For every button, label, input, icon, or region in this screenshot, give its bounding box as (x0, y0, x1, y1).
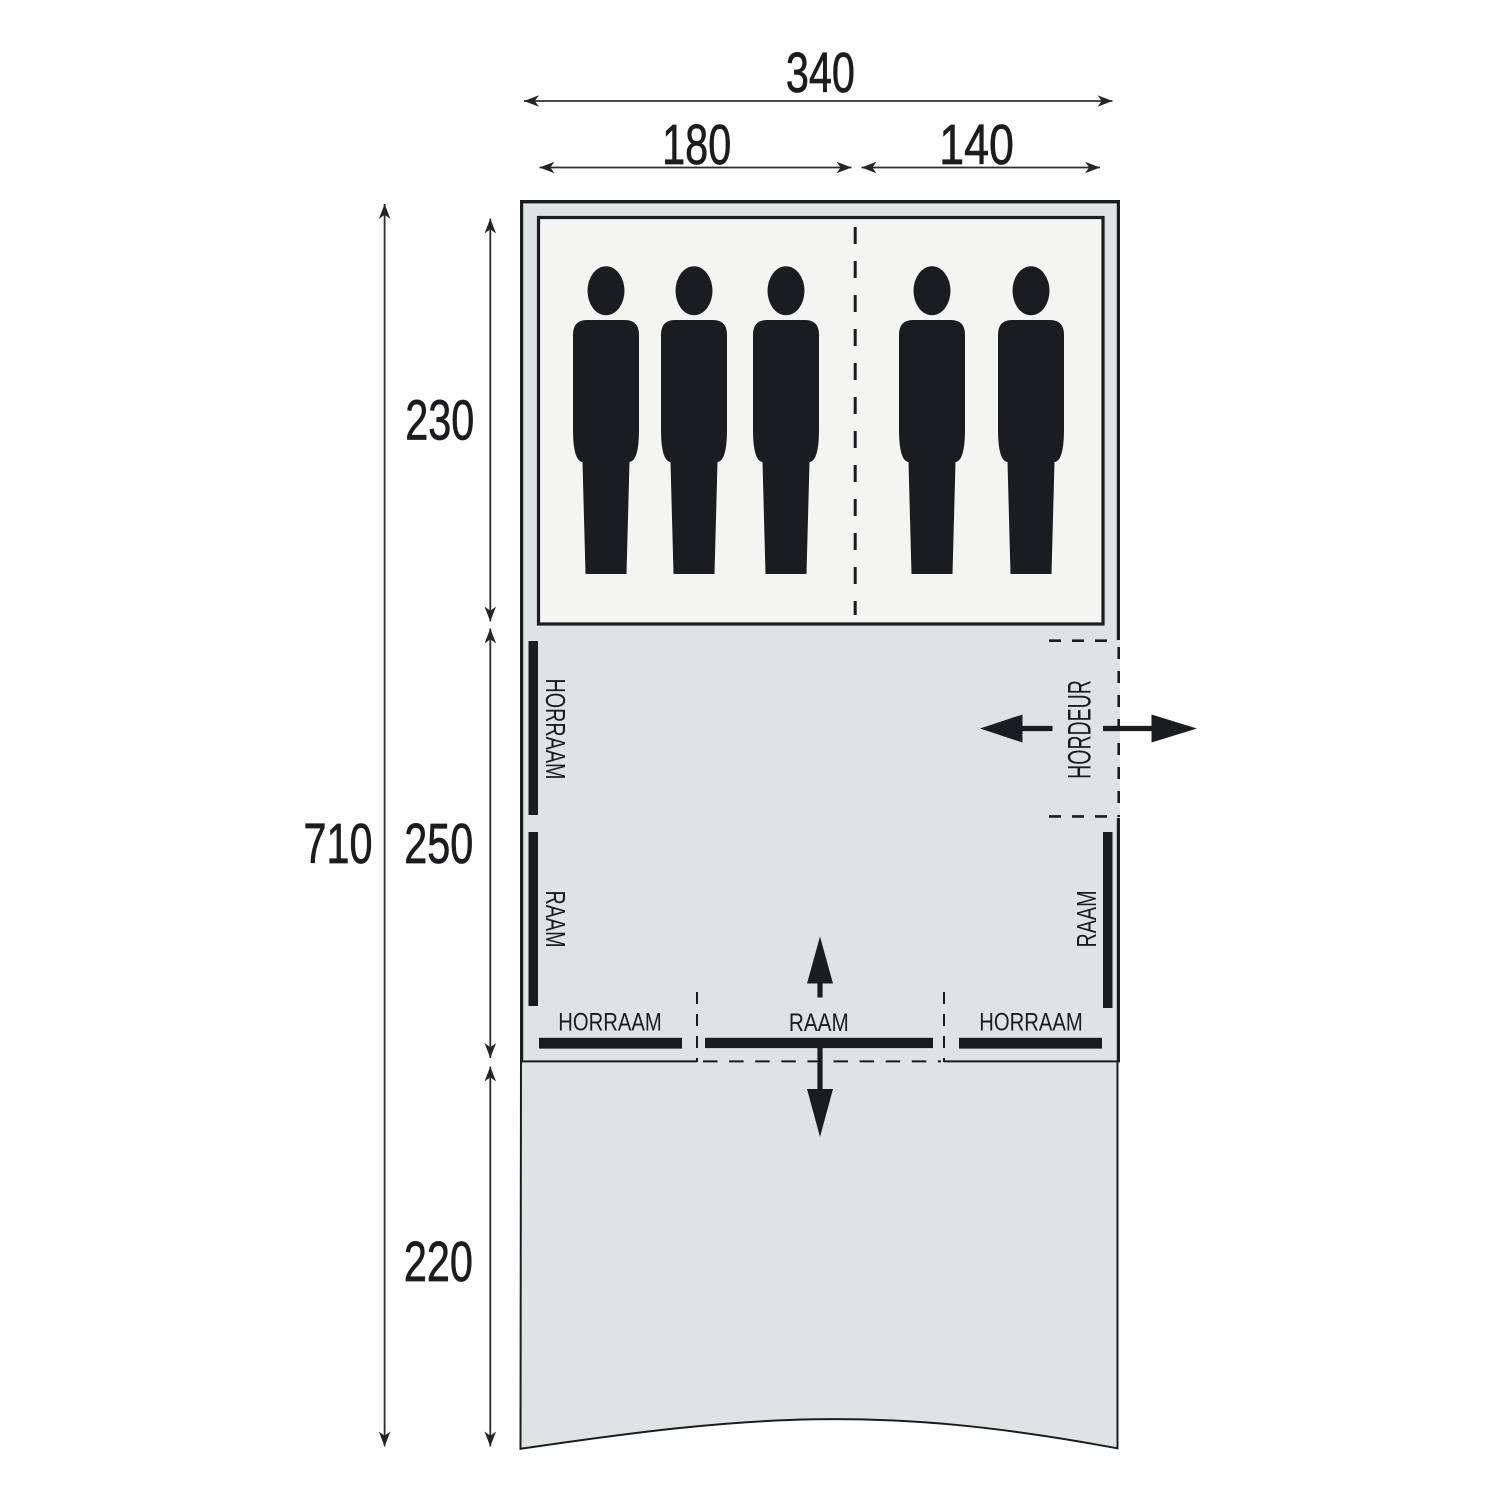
svg-text:140: 140 (939, 113, 1014, 176)
svg-text:220: 220 (404, 1229, 473, 1293)
svg-text:RAAM: RAAM (1072, 890, 1103, 947)
svg-text:180: 180 (662, 112, 731, 176)
svg-text:250: 250 (404, 811, 473, 875)
svg-text:RAAM: RAAM (539, 890, 570, 947)
svg-text:340: 340 (786, 41, 855, 105)
svg-text:HORRAAM: HORRAAM (979, 1008, 1082, 1037)
svg-text:230: 230 (405, 388, 474, 452)
svg-text:HORDEUR: HORDEUR (1062, 680, 1098, 779)
svg-text:RAAM: RAAM (789, 1008, 849, 1036)
svg-text:HORRAAM: HORRAAM (558, 1008, 661, 1037)
svg-text:HORRAAM: HORRAAM (539, 679, 570, 780)
svg-text:710: 710 (303, 811, 372, 875)
